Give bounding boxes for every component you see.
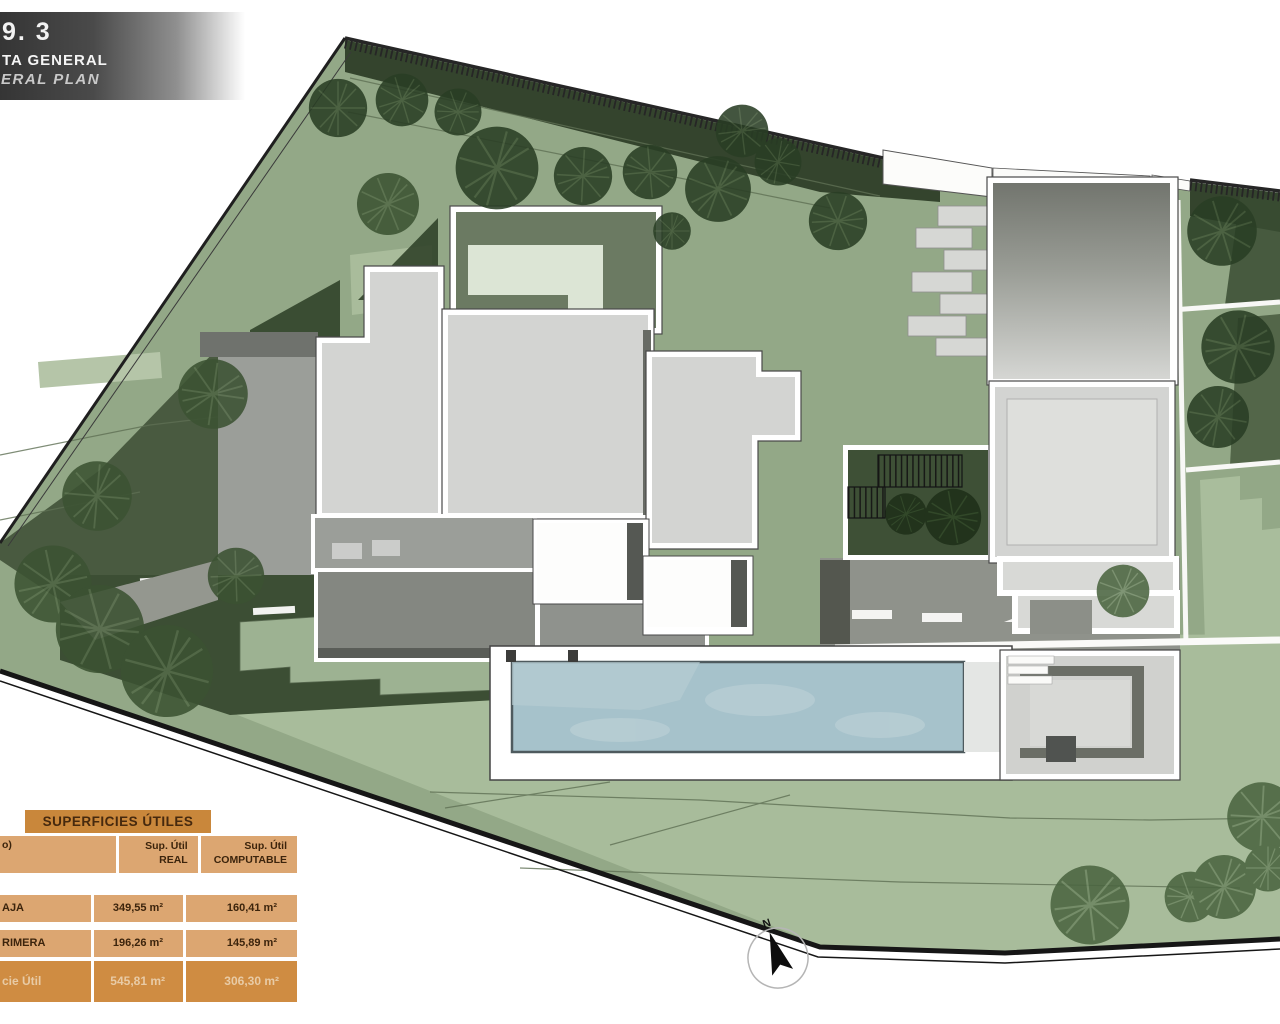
patio-frame [627,523,643,600]
pool-house-steps [1008,656,1054,684]
row-real-value: 196,26 m² [94,930,183,957]
table-row-planta-primera: RIMERA 196,26 m² 145,89 m² [0,930,297,957]
table-header-row: o) Sup. Útil REAL Sup. Útil COMPUTABLE [0,836,297,873]
title-block: 9. 3 TA GENERAL ERAL PLAN [0,12,245,100]
patio-frame [731,560,747,627]
terrace-detail [332,543,362,559]
areas-table-title: SUPERFICIES ÚTILES [25,810,211,833]
col-header-real-l2: REAL [119,853,188,867]
road-marking [922,613,962,622]
terrace-detail [372,540,400,556]
areas-table-grid: o) Sup. Útil REAL Sup. Útil COMPUTABLE A… [0,836,297,1002]
tree-icon [653,212,691,250]
row-computable-value: 145,89 m² [186,930,297,957]
pool [490,646,1012,780]
patio-1 [537,523,627,600]
driveway-edge [200,332,318,357]
col-header-computable: Sup. Útil COMPUTABLE [201,836,297,873]
total-real-value: 545,81 m² [94,961,183,1002]
total-computable-value: 306,30 m² [186,961,297,1002]
row-label: AJA [0,895,91,922]
tree-icon [309,79,367,137]
col-header-comp-l1: Sup. Útil [201,839,287,853]
road-dark-edge [820,560,850,644]
row-real-value: 349,55 m² [94,895,183,922]
row-label: RIMERA [0,930,91,957]
pool-deck-end [964,662,1000,752]
sheet-number: 9. 3 [2,18,52,47]
terrace-band-2 [318,572,535,658]
areas-table: SUPERFICIES ÚTILES o) Sup. Útil REAL Sup… [0,810,297,1002]
pool-house-frame [1020,748,1144,758]
plan-title-es: TA GENERAL [2,52,108,69]
table-total-row: cie Útil 545,81 m² 306,30 m² [0,961,297,1002]
col-header-comp-l2: COMPUTABLE [201,853,287,867]
total-label: cie Útil [0,961,91,1002]
right-building [987,177,1180,634]
pool-house [1000,650,1180,780]
rb-apron-step [1030,600,1092,634]
patio-2 [647,560,731,627]
table-row-planta-baja: AJA 349,55 m² 160,41 m² [0,895,297,922]
col-header-name: o) [0,836,116,873]
center-roof-mass [448,315,648,513]
rb-lower-roof [1007,399,1157,545]
row-computable-value: 160,41 m² [186,895,297,922]
pool-house-inner [1030,680,1130,746]
rb-upper-mass [993,183,1170,379]
pool-post [568,650,578,662]
col-header-real: Sup. Útil REAL [119,836,198,873]
pool-post [506,650,516,662]
plan-title-en: ERAL PLAN [1,71,100,88]
road-marking [852,610,892,619]
col-header-real-l1: Sup. Útil [119,839,188,853]
pool-house-frame [1132,666,1144,758]
site-plan-sheet: { "title_block": { "sheet_number": "9. 3… [0,0,1280,1024]
pool-house-block [1046,736,1076,762]
